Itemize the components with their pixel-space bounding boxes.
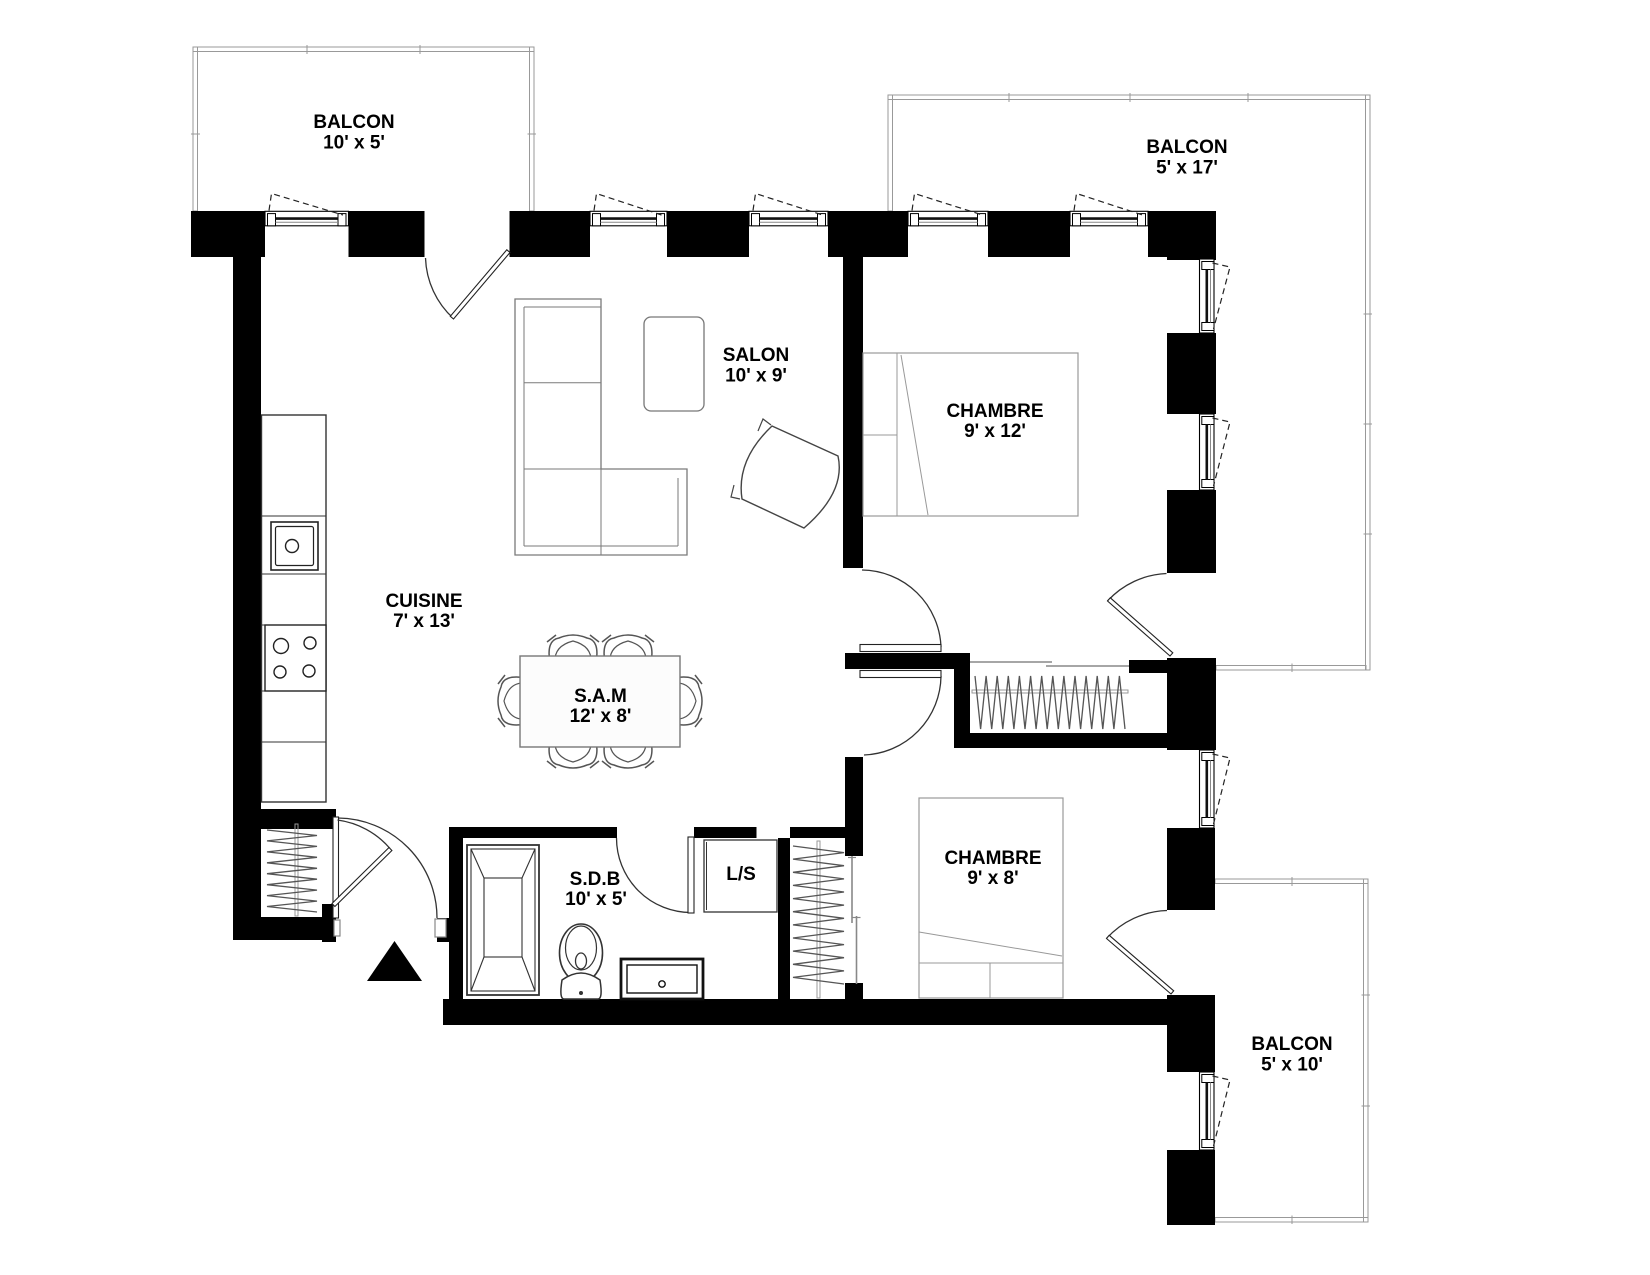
svg-text:BALCON: BALCON [1251,1034,1332,1055]
svg-text:BALCON: BALCON [1146,137,1227,158]
svg-text:12' x 8': 12' x 8' [570,706,632,727]
svg-text:CUISINE: CUISINE [385,591,462,612]
svg-text:5' x 17': 5' x 17' [1156,158,1218,179]
svg-text:CHAMBRE: CHAMBRE [944,848,1041,869]
svg-text:9' x 12': 9' x 12' [964,421,1026,442]
svg-text:S.D.B: S.D.B [570,869,621,890]
svg-text:10' x 9': 10' x 9' [725,366,787,387]
svg-text:5' x 10': 5' x 10' [1261,1055,1323,1076]
svg-text:SALON: SALON [723,345,790,366]
svg-text:7' x 13': 7' x 13' [393,611,455,632]
svg-text:BALCON: BALCON [313,112,394,133]
svg-text:10' x 5': 10' x 5' [565,889,627,910]
svg-text:10' x 5': 10' x 5' [323,133,385,154]
svg-text:S.A.M: S.A.M [574,686,627,707]
svg-text:L/S: L/S [726,864,756,885]
svg-text:9' x 8': 9' x 8' [967,868,1018,889]
svg-text:CHAMBRE: CHAMBRE [946,401,1043,422]
